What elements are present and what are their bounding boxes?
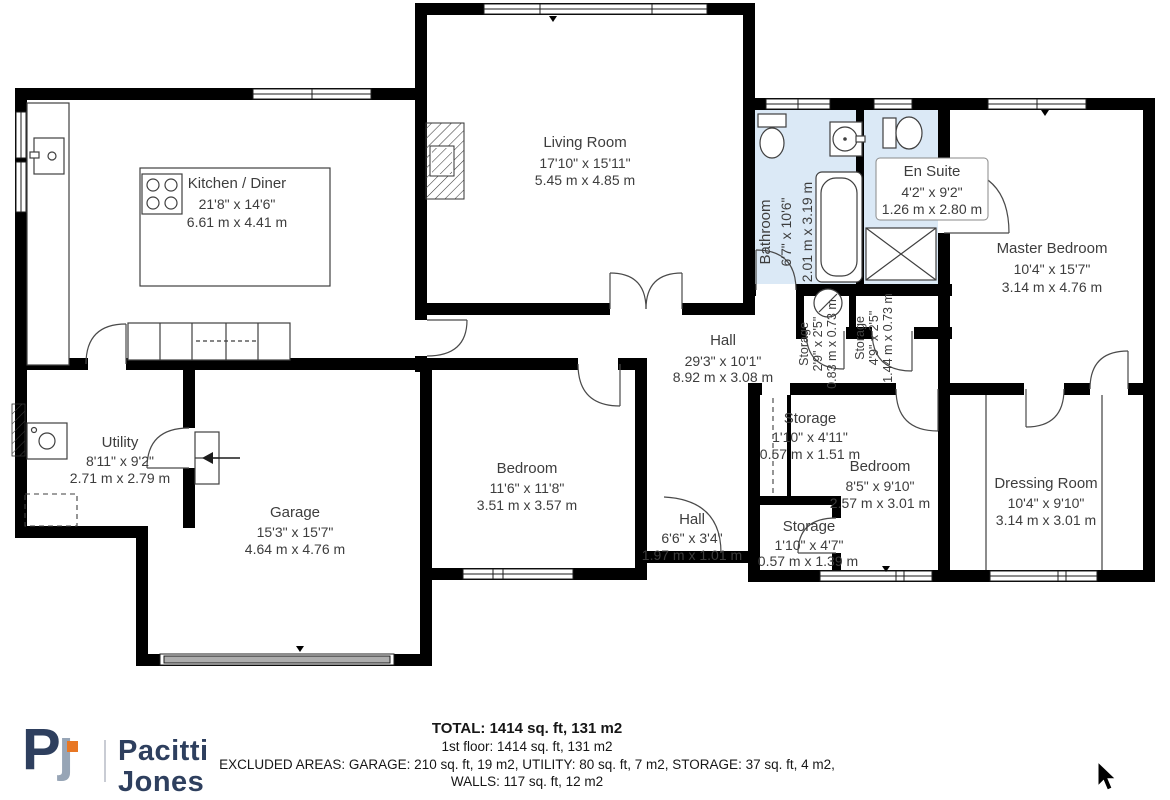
washing-machine-icon xyxy=(27,423,67,459)
svg-text:8'5" x 9'10": 8'5" x 9'10" xyxy=(846,478,915,494)
svg-text:8'11" x 9'2": 8'11" x 9'2" xyxy=(86,453,154,469)
logo-monogram: P ȷ xyxy=(20,724,98,794)
svg-text:Bedroom: Bedroom xyxy=(497,460,558,477)
window-kitchen-left xyxy=(16,112,26,158)
svg-text:11'6" x 11'8": 11'6" x 11'8" xyxy=(490,480,565,496)
logo-orange-dot-icon xyxy=(67,741,78,752)
room-label-kitchen: Kitchen / Diner 21'8" x 14'6" 6.61 m x 4… xyxy=(187,175,287,230)
svg-text:15'3" x 15'7": 15'3" x 15'7" xyxy=(257,524,334,540)
svg-text:0.57 m x 1.39 m: 0.57 m x 1.39 m xyxy=(758,553,858,569)
room-label-storage-low: Storage 1'10" x 4'7" 0.57 m x 1.39 m xyxy=(758,518,858,569)
window-living-top xyxy=(484,4,707,14)
logo-name-top: Pacitti xyxy=(118,736,209,767)
obscured-door-left xyxy=(12,404,25,456)
svg-text:0.57 m x 1.51 m: 0.57 m x 1.51 m xyxy=(760,446,860,462)
door-bedroom2 xyxy=(896,389,938,431)
bathroom-basin-icon xyxy=(830,122,865,156)
svg-text:Storage: Storage xyxy=(783,518,836,535)
dryer-dashed-icon xyxy=(25,494,77,526)
logo-divider xyxy=(104,740,106,782)
svg-text:En Suite: En Suite xyxy=(904,163,961,180)
svg-text:10'4" x 9'10": 10'4" x 9'10" xyxy=(1008,495,1085,511)
window-bedroom-bottom xyxy=(463,569,573,579)
door-kitchen-hall xyxy=(427,320,467,356)
svg-text:1'10" x 4'7": 1'10" x 4'7" xyxy=(775,537,844,553)
room-label-storage-tall: Storage 1'10" x 4'11" 0.57 m x 1.51 m xyxy=(760,410,860,462)
svg-text:4'2" x 9'2": 4'2" x 9'2" xyxy=(901,184,962,200)
svg-text:4'9" x 2'5": 4'9" x 2'5" xyxy=(867,311,881,366)
window-bathroom-top xyxy=(766,99,830,109)
mouse-cursor-icon xyxy=(1094,760,1124,800)
svg-text:Garage: Garage xyxy=(270,504,320,521)
svg-text:Storage: Storage xyxy=(853,316,867,360)
floorplan-page: { "plan": { "rooms": { "kitchen": {"name… xyxy=(0,0,1170,785)
svg-text:8.92 m x 3.08 m: 8.92 m x 3.08 m xyxy=(673,369,773,385)
kitchen-cabinets xyxy=(128,323,290,360)
room-label-bedroom-right: Bedroom 8'5" x 9'10" 2.57 m x 3.01 m xyxy=(830,458,930,511)
svg-text:Kitchen / Diner: Kitchen / Diner xyxy=(188,175,286,192)
svg-text:Master Bedroom: Master Bedroom xyxy=(997,240,1108,257)
svg-text:5.45 m x 4.85 m: 5.45 m x 4.85 m xyxy=(535,172,635,188)
room-label-bedroom-mid: Bedroom 11'6" x 11'8" 3.51 m x 3.57 m xyxy=(477,460,577,513)
bathroom-toilet-icon xyxy=(758,114,786,158)
svg-text:Bedroom: Bedroom xyxy=(850,458,911,475)
door-dressing xyxy=(1026,389,1064,427)
shower-icon xyxy=(866,228,936,280)
window-bedroom2-bottom xyxy=(820,571,932,581)
room-label-hall-small: Hall 6'6" x 3'4" 1.97 m x 1.01 m xyxy=(642,511,742,563)
svg-text:Storage: Storage xyxy=(784,410,837,427)
window-dressing-bottom xyxy=(990,571,1097,581)
window-master-top xyxy=(988,99,1086,109)
svg-text:0.83 m x 0.73 m: 0.83 m x 0.73 m xyxy=(825,299,839,389)
window-kitchen-top xyxy=(253,89,371,99)
svg-text:2.01 m x 3.19 m: 2.01 m x 3.19 m xyxy=(799,182,815,282)
svg-text:2'9" x 2'5": 2'9" x 2'5" xyxy=(811,317,825,372)
ensuite-toilet-icon xyxy=(883,117,922,149)
room-label-storage-ensuite: Storage 4'9" x 2'5" 1.44 m x 0.73 m xyxy=(853,293,895,383)
svg-text:1.26 m x 2.80 m: 1.26 m x 2.80 m xyxy=(882,201,982,217)
window-kitchen-left-2 xyxy=(16,162,26,212)
hob-icon xyxy=(142,174,182,214)
svg-text:29'3" x 10'1": 29'3" x 10'1" xyxy=(685,353,762,369)
window-ensuite-top xyxy=(874,99,912,109)
svg-text:Hall: Hall xyxy=(679,511,705,528)
svg-text:1.44 m x 0.73 m: 1.44 m x 0.73 m xyxy=(881,293,895,383)
svg-text:10'4" x 15'7": 10'4" x 15'7" xyxy=(1014,261,1091,277)
door-kitchen-utility xyxy=(86,324,126,364)
svg-text:3.14 m x 3.01 m: 3.14 m x 3.01 m xyxy=(996,512,1096,528)
svg-text:Living Room: Living Room xyxy=(543,134,626,151)
room-label-garage: Garage 15'3" x 15'7" 4.64 m x 4.76 m xyxy=(245,504,345,557)
kitchen-sink-icon xyxy=(30,138,64,174)
logo-wordmark: Pacitti Jones xyxy=(118,724,209,798)
floorplan-drawing: Kitchen / Diner 21'8" x 14'6" 6.61 m x 4… xyxy=(0,0,1170,700)
svg-text:21'8" x 14'6": 21'8" x 14'6" xyxy=(199,196,276,212)
svg-text:6'6" x 3'4": 6'6" x 3'4" xyxy=(661,530,722,546)
svg-text:3.14 m x 4.76 m: 3.14 m x 4.76 m xyxy=(1002,279,1102,295)
room-label-master: Master Bedroom 10'4" x 15'7" 3.14 m x 4.… xyxy=(997,240,1108,295)
logo-name-bottom: Jones xyxy=(118,767,209,798)
garage-door xyxy=(160,654,394,665)
door-master xyxy=(1090,351,1128,389)
svg-text:1.97 m x 1.01 m: 1.97 m x 1.01 m xyxy=(642,547,742,563)
svg-text:Dressing Room: Dressing Room xyxy=(994,475,1097,492)
svg-text:4.64 m x 4.76 m: 4.64 m x 4.76 m xyxy=(245,541,345,557)
svg-text:Hall: Hall xyxy=(710,332,736,349)
svg-text:6.61 m x 4.41 m: 6.61 m x 4.41 m xyxy=(187,214,287,230)
fireplace-icon xyxy=(426,123,464,199)
room-label-dressing: Dressing Room 10'4" x 9'10" 3.14 m x 3.0… xyxy=(994,475,1097,528)
door-bedroom1 xyxy=(578,364,620,406)
svg-text:2.57 m x 3.01 m: 2.57 m x 3.01 m xyxy=(830,495,930,511)
logo-monogram-p: P xyxy=(22,716,61,783)
svg-text:Bathroom: Bathroom xyxy=(757,199,774,264)
svg-text:17'10" x 15'11": 17'10" x 15'11" xyxy=(539,155,630,171)
svg-text:Utility: Utility xyxy=(102,434,139,451)
agency-logo: P ȷ Pacitti Jones xyxy=(20,724,209,794)
svg-text:3.51 m x 3.57 m: 3.51 m x 3.57 m xyxy=(477,497,577,513)
svg-text:1'10" x 4'11": 1'10" x 4'11" xyxy=(772,429,848,445)
room-label-hall: Hall 29'3" x 10'1" 8.92 m x 3.08 m xyxy=(673,332,773,385)
svg-text:Storage: Storage xyxy=(797,322,811,366)
room-label-living: Living Room 17'10" x 15'11" 5.45 m x 4.8… xyxy=(535,134,635,188)
bathtub-icon xyxy=(816,172,862,282)
room-label-utility: Utility 8'11" x 9'2" 2.71 m x 2.79 m xyxy=(70,434,170,486)
svg-text:6'7" x 10'6": 6'7" x 10'6" xyxy=(778,197,794,266)
door-living-double xyxy=(610,273,682,309)
svg-text:2.71 m x 2.79 m: 2.71 m x 2.79 m xyxy=(70,470,170,486)
